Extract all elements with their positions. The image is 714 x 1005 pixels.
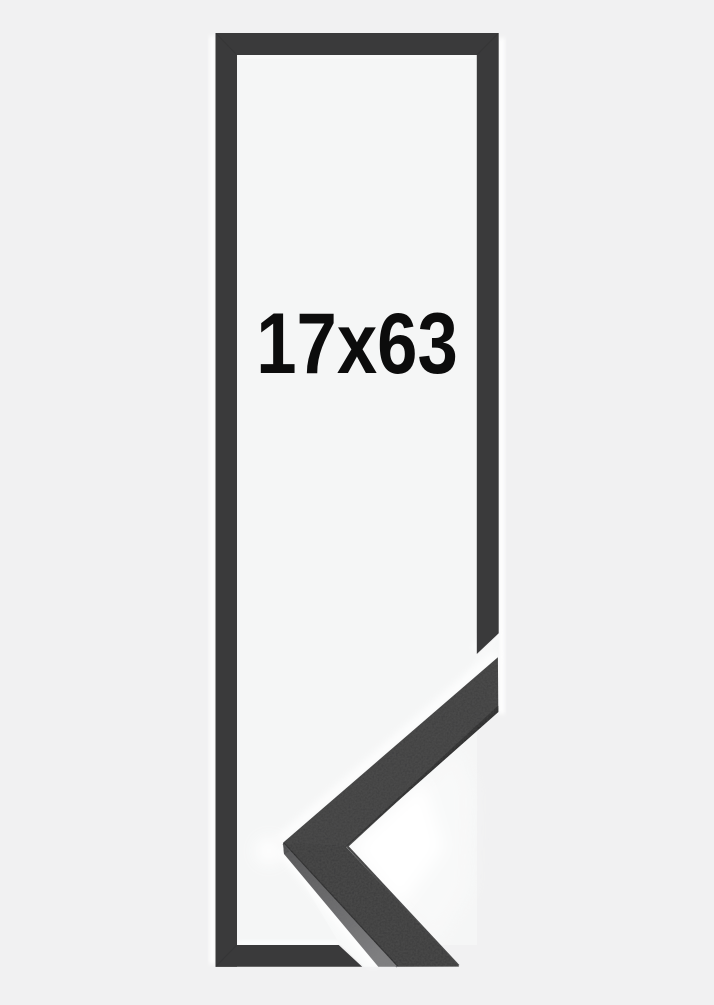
svg-text:17x63: 17x63 <box>256 295 458 391</box>
